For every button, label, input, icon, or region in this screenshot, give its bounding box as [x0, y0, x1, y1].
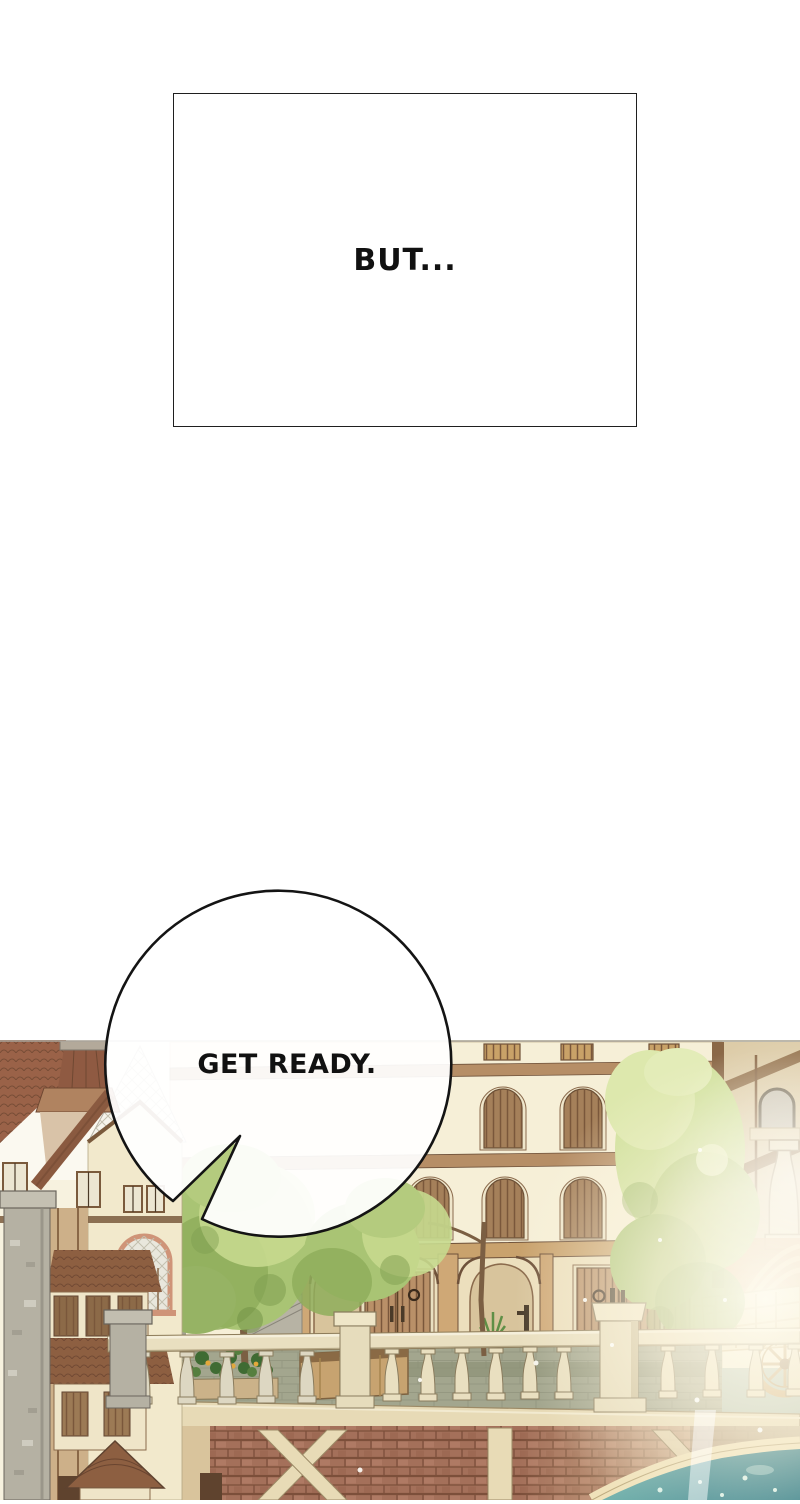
comic-page: BUT... — [0, 0, 800, 1500]
speech-bubble-text: GET READY. — [175, 1049, 399, 1080]
speech-bubble-layer — [0, 0, 800, 1500]
